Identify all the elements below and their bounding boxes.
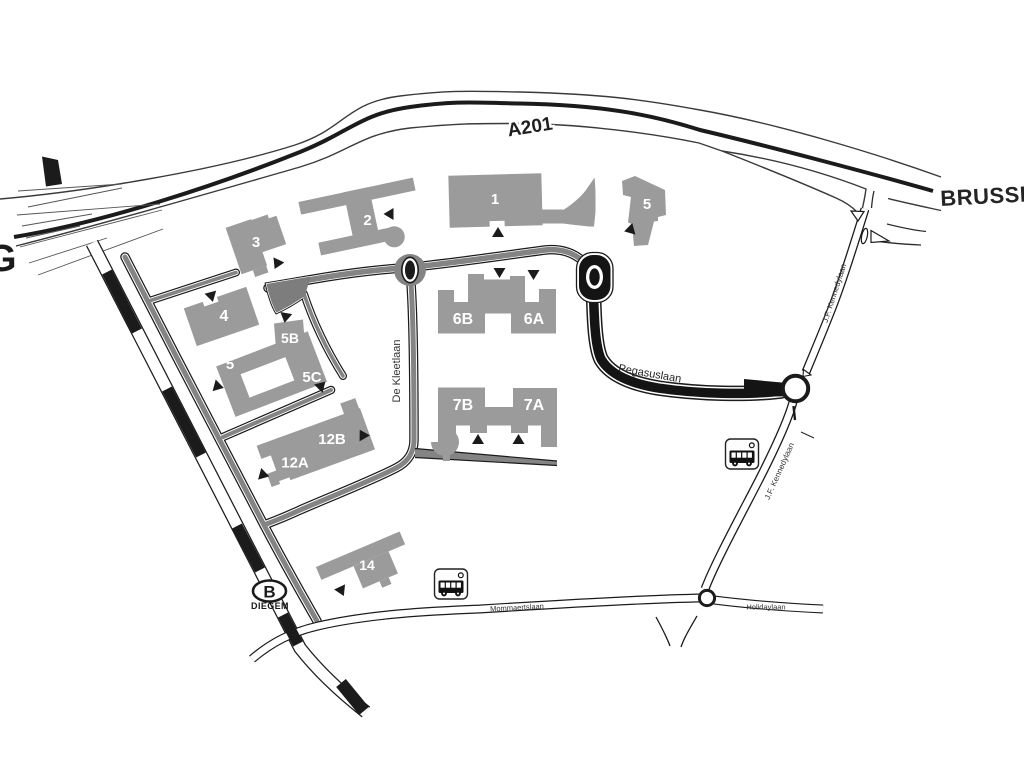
svg-text:2: 2: [363, 212, 371, 229]
svg-text:5B: 5B: [281, 330, 299, 346]
svg-text:6B: 6B: [453, 311, 473, 328]
svg-text:5: 5: [643, 196, 651, 213]
svg-text:14: 14: [359, 557, 375, 573]
svg-text:De Kleetlaan: De Kleetlaan: [391, 340, 403, 403]
svg-text:BRUSSEL: BRUSSEL: [940, 180, 1024, 211]
svg-text:Holidaylaan: Holidaylaan: [746, 603, 785, 612]
svg-text:DIEGEM: DIEGEM: [251, 601, 289, 611]
svg-text:1: 1: [491, 191, 499, 208]
svg-text:12A: 12A: [281, 455, 309, 472]
svg-text:G: G: [0, 238, 17, 280]
svg-text:3: 3: [252, 234, 260, 251]
svg-text:7A: 7A: [524, 397, 545, 414]
svg-text:12B: 12B: [318, 431, 346, 448]
svg-text:7B: 7B: [453, 397, 473, 414]
svg-text:6A: 6A: [524, 311, 545, 328]
svg-text:B: B: [263, 583, 275, 602]
svg-text:5: 5: [226, 356, 234, 373]
svg-text:4: 4: [220, 308, 229, 325]
